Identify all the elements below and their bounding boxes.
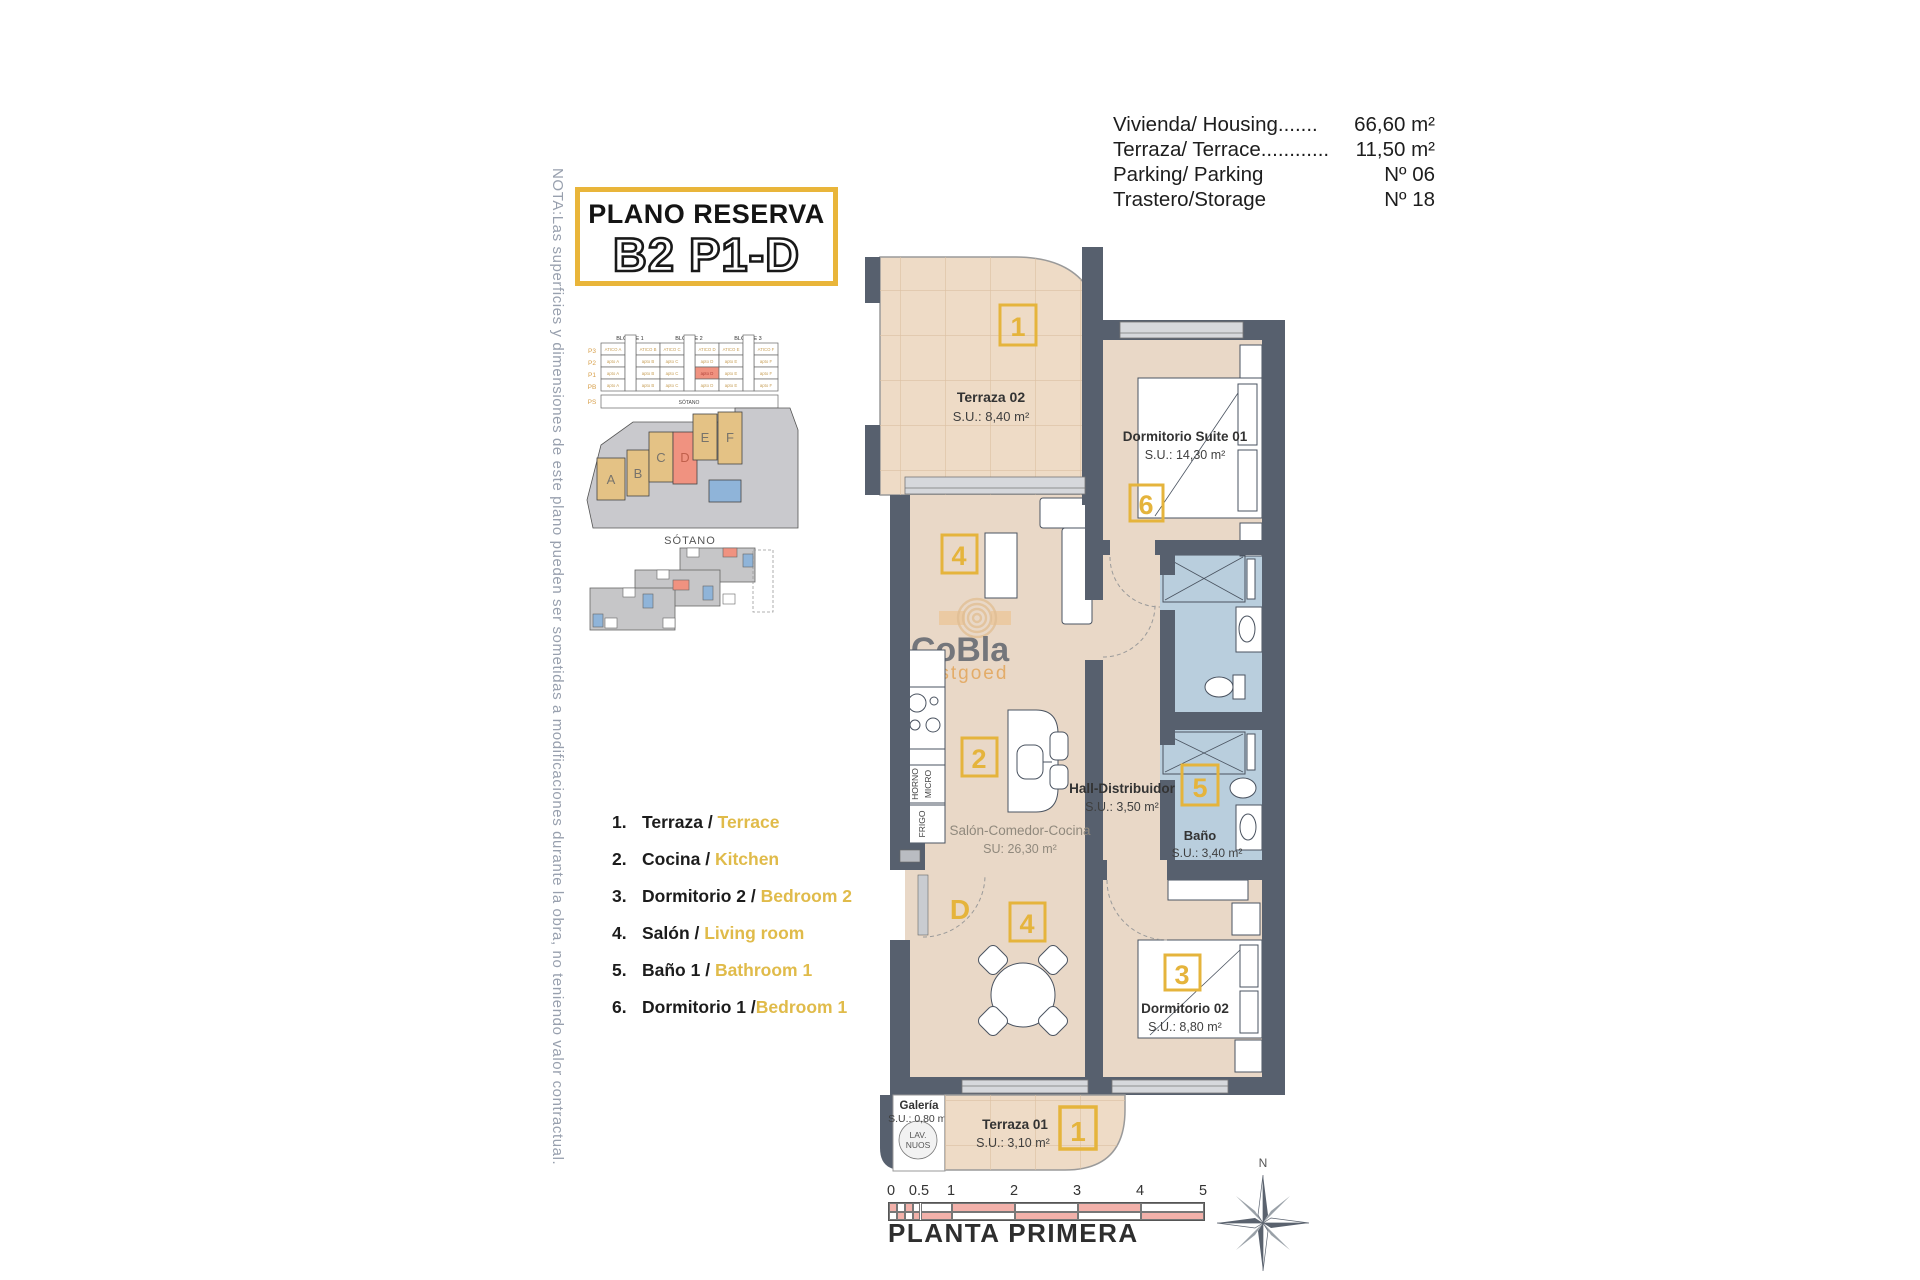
bano-area: S.U.: 3,40 m²	[1172, 846, 1243, 860]
terraza02-name: Terraza 02	[957, 389, 1025, 405]
svg-text:HORNO: HORNO	[910, 768, 920, 800]
legend-number: 4.	[612, 923, 642, 944]
legend-number: 6.	[612, 997, 642, 1018]
legend-en: Bathroom 1	[715, 960, 812, 981]
info-value: 11,50 m²	[1356, 137, 1435, 162]
svg-text:ATICO B: ATICO B	[640, 347, 657, 352]
legend-en: Bedroom 1	[756, 997, 847, 1018]
washer-label-2: NUOS	[906, 1140, 931, 1150]
nightstand	[1240, 345, 1262, 378]
svg-text:apto B: apto B	[642, 359, 655, 364]
storage-highlight	[723, 548, 737, 557]
scale-ticks: 0 0.5 1 2 3 4 5	[888, 1183, 1207, 1200]
entrance-door-label: D	[950, 894, 970, 925]
room-galeria: Galería S.U.: 0,80 m² LAV. NUOS	[888, 1095, 950, 1171]
unit-grid	[601, 335, 778, 408]
legend-es: Dormitorio 2 /	[642, 886, 761, 907]
tick: 4	[1136, 1183, 1144, 1199]
svg-text:P3: P3	[588, 348, 596, 355]
legend-es: Cocina /	[642, 849, 715, 870]
legend-en: Kitchen	[715, 849, 779, 870]
svg-text:apto E: apto E	[725, 359, 738, 364]
basement-label: SÓTANO	[664, 534, 716, 547]
wardrobe	[1168, 880, 1248, 900]
floor-name: PLANTA PRIMERA	[888, 1218, 1139, 1249]
legend-item: 4.Salón / Living room	[612, 923, 852, 960]
salon-name: Salón-Comedor-Cocina	[949, 823, 1091, 838]
info-row: Vivienda/ Housing.......66,60 m²	[1113, 112, 1435, 137]
vertical-disclaimer-note: NOTA:Las superficies y dimensiones de es…	[549, 168, 566, 1068]
tick: 3	[1073, 1183, 1081, 1199]
toilet	[1230, 778, 1256, 798]
svg-text:apto D: apto D	[701, 359, 714, 364]
svg-text:ATICO E: ATICO E	[723, 347, 740, 352]
washer-label-1: LAV.	[909, 1130, 926, 1140]
legend-es: Dormitorio 1 /	[642, 997, 756, 1018]
info-row: Parking/ ParkingNº 06	[1113, 162, 1435, 187]
svg-text:ATICO F: ATICO F	[758, 347, 775, 352]
salon-area: SU: 26,30 m²	[983, 842, 1057, 856]
legend-item: 5.Baño 1 / Bathroom 1	[612, 960, 852, 997]
svg-text:ATICO A: ATICO A	[605, 347, 622, 352]
svg-text:apto D: apto D	[701, 371, 714, 376]
legend-item: 6.Dormitorio 1 /Bedroom 1	[612, 997, 852, 1034]
stool	[1050, 765, 1068, 789]
toilet-tank	[1233, 675, 1245, 699]
unit-code: B2 P1-D	[580, 230, 833, 280]
room-terraza02	[880, 257, 1102, 495]
legend-en: Bedroom 2	[761, 886, 852, 907]
svg-text:ATICO C: ATICO C	[663, 347, 680, 352]
suite-name: Dormitorio Suite 01	[1123, 429, 1248, 444]
svg-text:C: C	[656, 450, 665, 465]
legend-en: Terrace	[718, 812, 780, 833]
legend-es: Baño 1 /	[642, 960, 715, 981]
galeria-name: Galería	[900, 1100, 940, 1112]
marker-terraza02: 1	[1010, 312, 1025, 342]
tick: 5	[1199, 1183, 1207, 1199]
legend-item: 2.Cocina / Kitchen	[612, 849, 852, 886]
svg-text:apto A: apto A	[607, 359, 619, 364]
svg-text:apto E: apto E	[725, 371, 738, 376]
tick: 1	[947, 1183, 955, 1199]
entrance-door-leaf	[918, 875, 928, 935]
page: NOTA:Las superficies y dimensiones de es…	[0, 0, 1920, 1280]
marker-terraza01: 1	[1070, 1116, 1086, 1147]
svg-text:P1: P1	[588, 372, 596, 379]
svg-text:F: F	[726, 430, 734, 445]
svg-text:apto E: apto E	[725, 383, 738, 388]
galeria-area: S.U.: 0,80 m²	[888, 1113, 950, 1125]
legend-en: Living room	[704, 923, 804, 944]
svg-text:PB: PB	[588, 384, 597, 391]
marker-dorm02: 3	[1174, 960, 1189, 990]
info-row: Trastero/StorageNº 18	[1113, 187, 1435, 212]
desk	[985, 533, 1017, 598]
svg-text:apto A: apto A	[607, 371, 619, 376]
dorm02-name: Dormitorio 02	[1141, 1001, 1229, 1016]
room-legend: 1.Terraza / Terrace 2.Cocina / Kitchen 3…	[612, 812, 852, 1034]
svg-text:apto D: apto D	[701, 383, 714, 388]
svg-text:D: D	[680, 450, 689, 465]
legend-item: 3.Dormitorio 2 / Bedroom 2	[612, 886, 852, 923]
info-value: 66,60 m²	[1354, 112, 1435, 137]
svg-text:apto C: apto C	[666, 359, 679, 364]
legend-es: Terraza /	[642, 812, 718, 833]
parking-highlight	[673, 580, 689, 590]
marker-salon-top: 4	[951, 541, 966, 571]
kitchen-island	[1008, 710, 1058, 812]
svg-text:apto F: apto F	[760, 383, 773, 388]
svg-text:MICRO: MICRO	[923, 769, 933, 798]
housing-info-panel: Vivienda/ Housing.......66,60 m² Terraza…	[1113, 112, 1435, 212]
svg-text:apto C: apto C	[666, 371, 679, 376]
terraza01-name: Terraza 01	[982, 1117, 1048, 1132]
shower-glass	[1247, 559, 1255, 599]
bano-name: Baño	[1184, 828, 1217, 843]
tick: 2	[1010, 1183, 1018, 1199]
info-row: Terraza/ Terrace............11,50 m²	[1113, 137, 1435, 162]
scale-bar: 0 0.5 1 2 3 4 5	[888, 1183, 1207, 1221]
basement-dashed-area	[753, 550, 773, 612]
terraza02-area: S.U.: 8,40 m²	[953, 409, 1030, 424]
legend-es: Salón /	[642, 923, 704, 944]
svg-text:FRIGO: FRIGO	[917, 810, 927, 837]
tick: 0.5	[909, 1183, 929, 1199]
svg-text:A: A	[607, 472, 616, 487]
svg-text:E: E	[701, 430, 710, 445]
svg-text:apto B: apto B	[642, 371, 655, 376]
marker-bano: 5	[1192, 773, 1207, 803]
pillow	[1240, 945, 1258, 987]
hall-area: S.U.: 3,50 m²	[1085, 800, 1159, 814]
svg-text:apto F: apto F	[760, 371, 773, 376]
floor-row-labels: P3 P2 P1 PB PS	[588, 348, 597, 406]
info-value: Nº 06	[1384, 162, 1435, 187]
legend-number: 2.	[612, 849, 642, 870]
svg-text:P2: P2	[588, 360, 596, 367]
hall-name: Hall-Distribuidor	[1069, 781, 1175, 796]
svg-text:apto C: apto C	[666, 383, 679, 388]
svg-text:apto A: apto A	[607, 383, 619, 388]
svg-text:ATICO D: ATICO D	[698, 347, 715, 352]
shower-glass	[1247, 734, 1255, 770]
marker-cocina: 2	[971, 744, 986, 774]
legend-number: 5.	[612, 960, 642, 981]
site-plan-mini-map: A B C D E F	[585, 400, 803, 532]
legend-number: 1.	[612, 812, 642, 833]
marker-salon-bottom: 4	[1019, 909, 1034, 939]
dorm02-area: S.U.: 8,80 m²	[1148, 1020, 1222, 1034]
floor-plan: CoBla Vastgoed	[855, 245, 1345, 1195]
compass-rose: N	[1213, 1155, 1313, 1275]
legend-item: 1.Terraza / Terrace	[612, 812, 852, 849]
tick: 0	[887, 1183, 895, 1199]
info-label: Vivienda/ Housing.......	[1113, 112, 1318, 137]
north-label: N	[1259, 1156, 1268, 1170]
pool	[709, 480, 741, 502]
basement-mini-map: SÓTANO	[585, 528, 815, 668]
pillow	[1238, 450, 1257, 511]
plan-title: PLANO RESERVA	[580, 199, 833, 230]
marker-suite: 6	[1138, 490, 1153, 520]
svg-text:B: B	[634, 466, 643, 481]
info-value: Nº 18	[1384, 187, 1435, 212]
info-label: Terraza/ Terrace............	[1113, 137, 1329, 162]
pillow	[1240, 991, 1258, 1033]
nightstand	[1232, 903, 1260, 935]
compass-star	[1217, 1175, 1309, 1271]
svg-text:apto F: apto F	[760, 359, 773, 364]
toilet	[1205, 677, 1233, 697]
terraza01-area: S.U.: 3,10 m²	[976, 1136, 1050, 1150]
suite-area: S.U.: 14,30 m²	[1145, 448, 1226, 462]
info-label: Parking/ Parking	[1113, 162, 1263, 187]
svg-text:apto B: apto B	[642, 383, 655, 388]
legend-number: 3.	[612, 886, 642, 907]
washbasin-counter	[1236, 607, 1262, 652]
nightstand	[1235, 1040, 1262, 1072]
stool	[1050, 732, 1068, 760]
info-label: Trastero/Storage	[1113, 187, 1266, 212]
room-terraza01: 1 Terraza 01 S.U.: 3,10 m²	[945, 1095, 1125, 1170]
plan-title-box: PLANO RESERVA B2 P1-D	[575, 187, 838, 286]
